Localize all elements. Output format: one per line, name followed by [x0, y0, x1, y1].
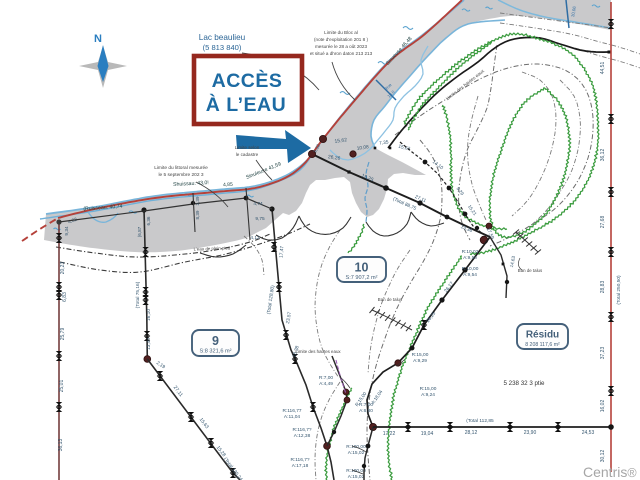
svg-text:25,79: 25,79	[60, 328, 66, 341]
svg-text:28,12: 28,12	[465, 430, 478, 436]
svg-text:16,10: 16,10	[146, 309, 152, 321]
svg-text:R:10,00: R:10,00	[462, 266, 479, 272]
svg-text:R:116,7?: R:116,7?	[290, 457, 309, 463]
svg-text:A:6,80: A:6,80	[359, 408, 373, 414]
svg-text:R:7,00: R:7,00	[319, 375, 333, 381]
svg-text:4,85: 4,85	[223, 182, 233, 189]
svg-text:9: 9	[212, 334, 219, 348]
svg-text:Limite du littoral mesurée: Limite du littoral mesurée	[154, 165, 208, 171]
svg-text:36,12: 36,12	[600, 149, 606, 162]
svg-text:24,53: 24,53	[582, 430, 595, 436]
svg-text:5 238 32 3 ptie: 5 238 32 3 ptie	[504, 380, 545, 387]
svg-text:15,21: 15,21	[467, 204, 478, 217]
svg-text:R:15,00: R:15,00	[412, 352, 429, 358]
svg-text:20,23: 20,23	[60, 262, 66, 275]
svg-text:(Total 250,50): (Total 250,50)	[616, 275, 622, 305]
svg-text:L'eau de plein pied: L'eau de plein pied	[194, 245, 231, 251]
svg-text:R:15,00: R:15,00	[420, 386, 437, 392]
svg-text:6,36: 6,36	[146, 216, 151, 225]
svg-text:A:17,18: A:17,18	[292, 463, 309, 469]
svg-text:44,51: 44,51	[600, 62, 606, 75]
svg-text:(Total 112,85: (Total 112,85	[466, 418, 494, 424]
svg-text:8,39: 8,39	[195, 210, 200, 219]
svg-text:4,12: 4,12	[250, 235, 260, 241]
svg-text:N: N	[94, 33, 102, 45]
svg-text:2,19: 2,19	[155, 360, 166, 370]
svg-text:le cadastre: le cadastre	[236, 152, 259, 157]
svg-text:(Total 75,16): (Total 75,16)	[135, 281, 141, 308]
svg-text:A:4,49: A:4,49	[319, 381, 333, 387]
svg-text:ACCÈS: ACCÈS	[212, 69, 283, 92]
svg-text:(note d'exploitation 201 8 ): (note d'exploitation 201 8 )	[314, 37, 368, 42]
svg-text:9,29: 9,29	[455, 186, 465, 196]
svg-text:A:15,02: A:15,02	[348, 450, 365, 456]
svg-text:A:9,54: A:9,54	[463, 272, 477, 278]
svg-text:26,25: 26,25	[425, 311, 437, 324]
svg-text:7,35: 7,35	[379, 139, 389, 146]
svg-text:37,23: 37,23	[600, 347, 606, 360]
svg-text:Limite du Bloc al: Limite du Bloc al	[324, 30, 358, 35]
svg-text:8 208 117,6 m²: 8 208 117,6 m²	[525, 342, 560, 348]
svg-text:A:9,50: A:9,50	[463, 255, 477, 261]
svg-text:S:8 321,6 m²: S:8 321,6 m²	[199, 349, 231, 355]
svg-text:17,22: 17,22	[383, 431, 396, 437]
svg-text:27,11: 27,11	[172, 385, 184, 398]
svg-text:2,39: 2,39	[195, 196, 200, 205]
svg-text:25,01: 25,01	[59, 380, 65, 393]
svg-text:6,83: 6,83	[62, 292, 68, 302]
svg-text:Résidu: Résidu	[526, 330, 559, 341]
svg-text:R:100,00: R:100,00	[346, 468, 366, 474]
svg-text:10: 10	[355, 261, 369, 275]
svg-text:A:15,02: A:15,02	[348, 474, 365, 480]
svg-text:A:9,29: A:9,29	[413, 358, 427, 364]
svg-text:Limite des hautes eaux: Limite des hautes eaux	[445, 68, 486, 101]
svg-text:R:116,7?: R:116,7?	[292, 427, 311, 433]
svg-text:27,68: 27,68	[600, 216, 606, 229]
svg-text:Centris®: Centris®	[583, 464, 637, 480]
svg-text:23,90: 23,90	[524, 430, 537, 436]
svg-text:28,83: 28,83	[600, 281, 606, 294]
svg-text:Limite selon: Limite selon	[235, 145, 260, 150]
svg-text:À L’EAU: À L’EAU	[206, 93, 286, 116]
svg-text:(Total 128,80): (Total 128,80)	[266, 285, 276, 315]
svg-text:Shuissau: 43,0!: Shuissau: 43,0!	[173, 180, 209, 188]
svg-text:23,57: 23,57	[285, 311, 293, 324]
svg-text:(5 813 840): (5 813 840)	[203, 43, 242, 52]
svg-text:9,34: 9,34	[64, 226, 70, 236]
svg-text:R:10,03: R:10,03	[462, 249, 479, 255]
svg-text:13,40: 13,40	[146, 338, 152, 350]
svg-text:16,02: 16,02	[600, 400, 606, 413]
svg-text:14,63: 14,63	[509, 255, 516, 268]
svg-text:30,12: 30,12	[600, 450, 606, 463]
svg-text:4,74: 4,74	[253, 201, 263, 207]
svg-text:19,04: 19,04	[421, 431, 434, 437]
svg-text:R:116,77: R:116,77	[282, 408, 301, 414]
svg-text:Ban de talus: Ban de talus	[518, 268, 543, 273]
svg-text:17,47: 17,47	[278, 245, 285, 258]
svg-text:mesurée le 28 a oût 2023: mesurée le 28 a oût 2023	[315, 44, 368, 49]
svg-text:S:7 907,2 m²: S:7 907,2 m²	[345, 275, 377, 281]
svg-text:A:11,04: A:11,04	[284, 414, 301, 420]
svg-text:A:18,04: A:18,04	[370, 389, 383, 405]
svg-text:A:12,38: A:12,38	[294, 433, 311, 439]
svg-text:9,75: 9,75	[255, 216, 265, 222]
svg-text:Limite des hautes eaux: Limite des hautes eaux	[295, 349, 341, 354]
svg-text:(6,87: (6,87	[137, 226, 142, 237]
svg-text:Ban de talus: Ban de talus	[378, 297, 403, 302]
svg-text:le 5 septembre 202 3: le 5 septembre 202 3	[158, 172, 203, 178]
svg-text:Lac beaulieu: Lac beaulieu	[199, 33, 246, 42]
svg-text:et situé a dhron daton 213 213: et situé a dhron daton 213 213	[310, 51, 373, 56]
svg-text:A:9,24: A:9,24	[421, 392, 435, 398]
svg-text:36,13: 36,13	[58, 439, 64, 452]
